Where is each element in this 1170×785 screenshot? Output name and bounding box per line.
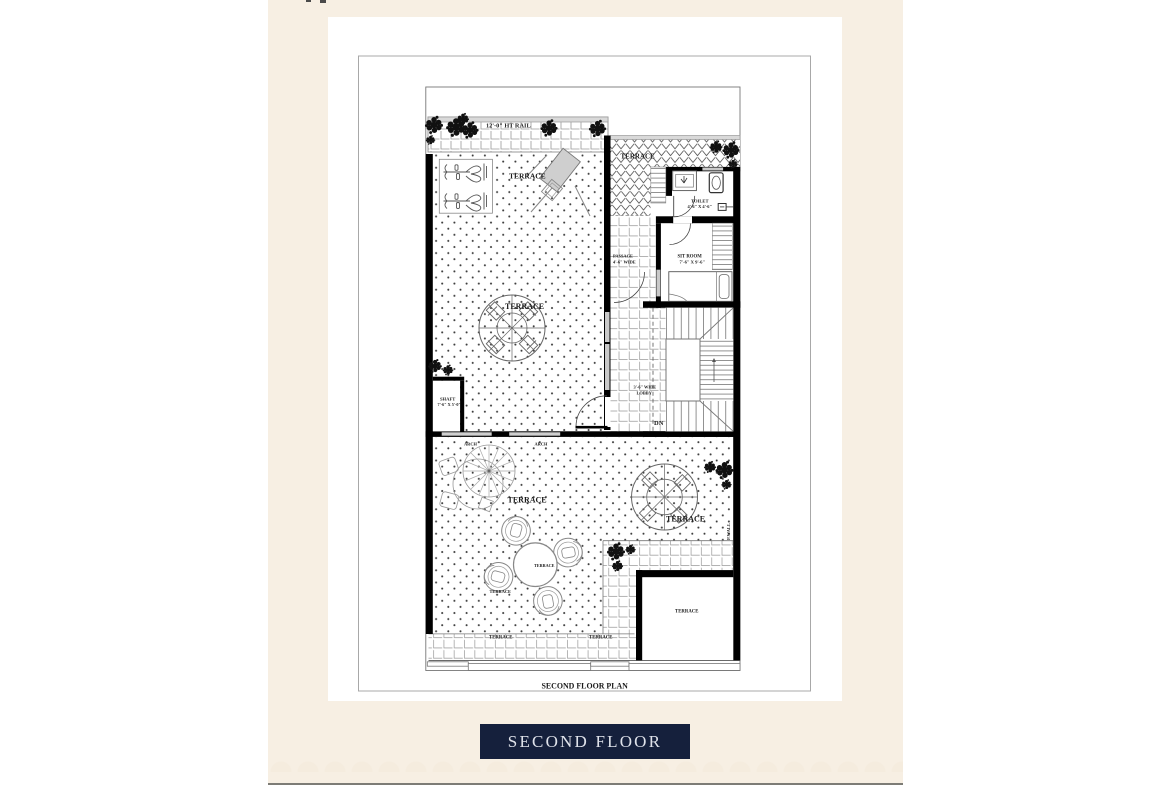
svg-text:LOBBY: LOBBY [637,391,653,396]
svg-text:TERRACE: TERRACE [508,496,547,505]
svg-text:TOILET: TOILET [691,198,709,203]
svg-text:TERRACE: TERRACE [509,172,546,181]
svg-text:7'-6" X 9'-6": 7'-6" X 9'-6" [680,260,706,265]
svg-text:P.WALL: P.WALL [726,523,731,540]
svg-text:3'-6" WIDE: 3'-6" WIDE [634,385,657,390]
svg-text:TERRACE: TERRACE [534,563,555,568]
svg-text:PASSAGE: PASSAGE [613,254,633,259]
svg-text:TERRACE: TERRACE [489,636,512,641]
svg-text:TERRACE: TERRACE [490,589,512,594]
svg-text:TERRACE: TERRACE [675,610,698,615]
svg-text:TERRACE: TERRACE [666,515,705,524]
svg-text:DN: DN [654,420,664,427]
svg-text:7'-6" X 5'-0": 7'-6" X 5'-0" [438,402,461,407]
svg-text:TERRACE: TERRACE [621,153,656,161]
svg-text:TERRACE: TERRACE [589,636,612,641]
svg-text:ARCH: ARCH [464,442,478,447]
svg-text:TERRACE: TERRACE [505,302,544,311]
svg-text:SHAFT: SHAFT [440,397,455,402]
svg-text:4'-6" X 4'-6": 4'-6" X 4'-6" [688,204,712,209]
svg-text:12'-0" HT RAIL: 12'-0" HT RAIL [486,123,531,130]
svg-text:ARCH: ARCH [535,442,549,447]
svg-text:4'-6" WIDE: 4'-6" WIDE [613,260,636,265]
svg-text:SECOND FLOOR PLAN: SECOND FLOOR PLAN [542,682,629,691]
